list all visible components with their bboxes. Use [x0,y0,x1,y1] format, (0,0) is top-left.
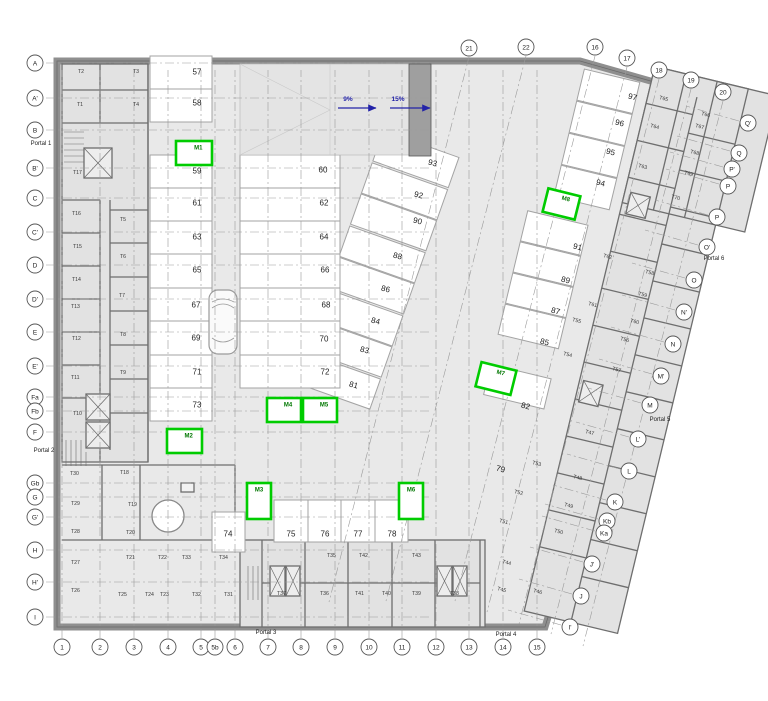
grid-axis-label: N' [681,309,687,316]
grid-axis-label: P [726,183,730,190]
grid-axis-label: 10 [365,644,373,651]
grid-axis-label: D [33,262,38,269]
storage-room-label: T25 [118,592,127,598]
fixture-icon [181,483,194,492]
grid-axis-label: G [32,494,37,501]
ramp-slope-label: 9% [343,96,353,103]
storage-room-label: T4 [133,102,139,108]
grid-axis-label: 6 [233,644,237,651]
storage-room-label: T29 [71,501,80,507]
moto-space-label: M3 [255,488,264,494]
parking-space-number: 62 [320,199,329,208]
parking-space-number: 60 [319,166,328,175]
grid-axis-label: 21 [465,45,473,52]
parking-space-number: 59 [193,167,202,176]
grid-axis-label: O' [704,244,710,251]
storage-room-label: T11 [71,375,80,381]
car-icon [209,290,237,354]
grid-axis-label: 19 [687,77,695,84]
parking-space-number: 57 [193,68,202,77]
grid-axis-label: L [627,468,631,475]
storage-room-label: T21 [126,555,135,561]
grid-axis-label: K [613,499,618,506]
grid-axis-label: I [34,614,36,621]
storage-room-label: T32 [192,592,201,598]
grid-axis-label: A' [32,95,38,102]
grid-axis-label: Kb [603,518,611,525]
parking-space-number: 78 [388,530,397,539]
ramp-slope-label: 15% [391,96,404,103]
grid-axis-label: 2 [98,644,102,651]
storage-room-label: T14 [72,277,81,283]
grid-axis-label: 1 [60,644,64,651]
grid-axis-label: 20 [719,89,727,96]
portal-label: Portal 6 [704,256,725,262]
parking-space-number: 69 [192,334,201,343]
parking-space-number: 61 [193,199,202,208]
parking-space-number: 72 [321,368,330,377]
ramp-wall [409,64,431,156]
grid-axis-label: 18 [655,67,663,74]
grid-axis-label: 22 [522,44,530,51]
storage-room-label: T35 [327,553,336,559]
grid-axis-label: J' [590,561,595,568]
storage-room-label: T13 [71,304,80,310]
grid-axis-label: J [579,593,582,600]
parking-space-number: 75 [287,530,296,539]
storage-room-label: T5 [120,217,126,223]
grid-axis-label: 14 [499,644,507,651]
portal-label: Portal 1 [31,141,52,147]
grid-axis-label: A [33,60,38,67]
grid-axis-label: Q [736,150,741,157]
storage-room-label: T18 [120,470,129,476]
parking-space-number: 64 [320,233,329,242]
portal-label: Portal 5 [650,417,671,423]
grid-axis-label: C' [32,229,38,236]
grid-axis-label: 12 [432,644,440,651]
grid-axis-label: Ka [600,530,608,537]
grid-axis-label: 5b [211,644,219,651]
parking-space-number: 67 [192,301,201,310]
storage-room-label: T30 [70,471,79,477]
grid-axis-label: N [671,341,676,348]
grid-axis-label: M [647,402,652,409]
grid-axis-label: Fa [31,394,39,401]
grid-axis-label: P' [729,166,735,173]
storage-room-label: T3 [133,69,139,75]
parking-space-number: 71 [193,368,202,377]
grid-axis-label: B' [32,165,38,172]
parking-space-number: 63 [193,233,202,242]
parking-space-number: 66 [321,266,330,275]
grid-axis-label: M' [658,373,665,380]
moto-space-label: M1 [194,146,203,152]
grid-axis-label: 17 [623,55,631,62]
storage-room-label: T16 [72,211,81,217]
storage-room-label: T23 [160,592,169,598]
storage-room-label: T1 [77,102,83,108]
grid-axis-label: 3 [132,644,136,651]
storage-room-label: T39 [412,591,421,597]
storage-room-label: T38 [450,591,459,597]
grid-axis-label: E [33,329,38,336]
grid-axis-label: H [33,547,38,554]
grid-axis-label: I' [568,624,571,631]
storage-room-label: T41 [355,591,364,597]
storage-room-label: T15 [73,244,82,250]
grid-axis-label: 7 [266,644,270,651]
storage-room-label: T10 [73,411,82,417]
portal-label: Portal 4 [496,632,517,638]
parking-space-number: 73 [193,401,202,410]
grid-axis-label: E' [32,363,38,370]
grid-axis-label: Gb [31,480,40,487]
storage-room-label: T12 [72,336,81,342]
portal-label: Portal 3 [256,630,277,636]
grid-axis-label: 16 [591,44,599,51]
grid-axis-label: Fb [31,408,39,415]
moto-space-label: M5 [320,403,329,409]
storage-room-label: T36 [320,591,329,597]
storage-room-label: T20 [126,530,135,536]
storage-room-label: T40 [382,591,391,597]
grid-axis-label: 8 [299,644,303,651]
storage-room-label: T24 [145,592,154,598]
storage-room-label: T22 [158,555,167,561]
grid-axis-label: L' [636,436,641,443]
storage-room-label: T19 [128,502,137,508]
grid-axis-label: 11 [399,644,406,651]
moto-space-label: M6 [407,488,416,494]
moto-space-label: M2 [185,434,194,440]
parking-space-number: 68 [322,301,331,310]
grid-axis-label: 13 [465,644,473,651]
grid-axis-label: G' [32,514,38,521]
floor-plan-drawing: M1M2M3M4M5M6M7M8575859616365676971736062… [0,0,768,696]
storage-room-label: T34 [219,555,228,561]
grid-axis-label: F [33,429,37,436]
storage-room-label: T33 [182,555,191,561]
storage-room-label: T7 [119,293,125,299]
storage-room-label: T17 [73,170,82,176]
floor-plan-page: M1M2M3M4M5M6M7M8575859616365676971736062… [0,0,768,696]
grid-axis-label: P [715,214,719,221]
parking-space-number: 76 [321,530,330,539]
grid-axis-label: O [691,277,696,284]
storage-room-label: T26 [71,588,80,594]
ramp [240,64,431,156]
grid-axis-label: H' [32,579,38,586]
grid-axis-label: 4 [166,644,170,651]
moto-space-label: M4 [284,403,293,409]
storage-room-label: T28 [71,529,80,535]
storage-room-label: T31 [224,592,233,598]
parking-space-number: 77 [354,530,363,539]
storage-room-label: T9 [120,370,126,376]
storage-room-label: T42 [359,553,368,559]
portal-label: Portal 2 [34,448,55,454]
grid-axis-label: 5 [199,644,203,651]
storage-room-label: T37 [277,591,286,597]
storage-room-label: T8 [120,332,126,338]
storage-room-label: T6 [120,254,126,260]
storage-room-label: T43 [412,553,421,559]
parking-space-number: 74 [224,530,233,539]
storage-room-label: T27 [71,560,80,566]
grid-axis-label: B [33,127,37,134]
grid-axis-label: C [33,195,38,202]
grid-axis-label: D' [32,296,38,303]
parking-space-number: 58 [193,99,202,108]
parking-space-number: 65 [193,266,202,275]
grid-axis-label: 9 [333,644,337,651]
storage-room-label: T2 [78,69,84,75]
parking-space-number: 70 [320,335,329,344]
grid-axis-label: 15 [533,644,541,651]
grid-axis-label: Q' [745,120,751,127]
